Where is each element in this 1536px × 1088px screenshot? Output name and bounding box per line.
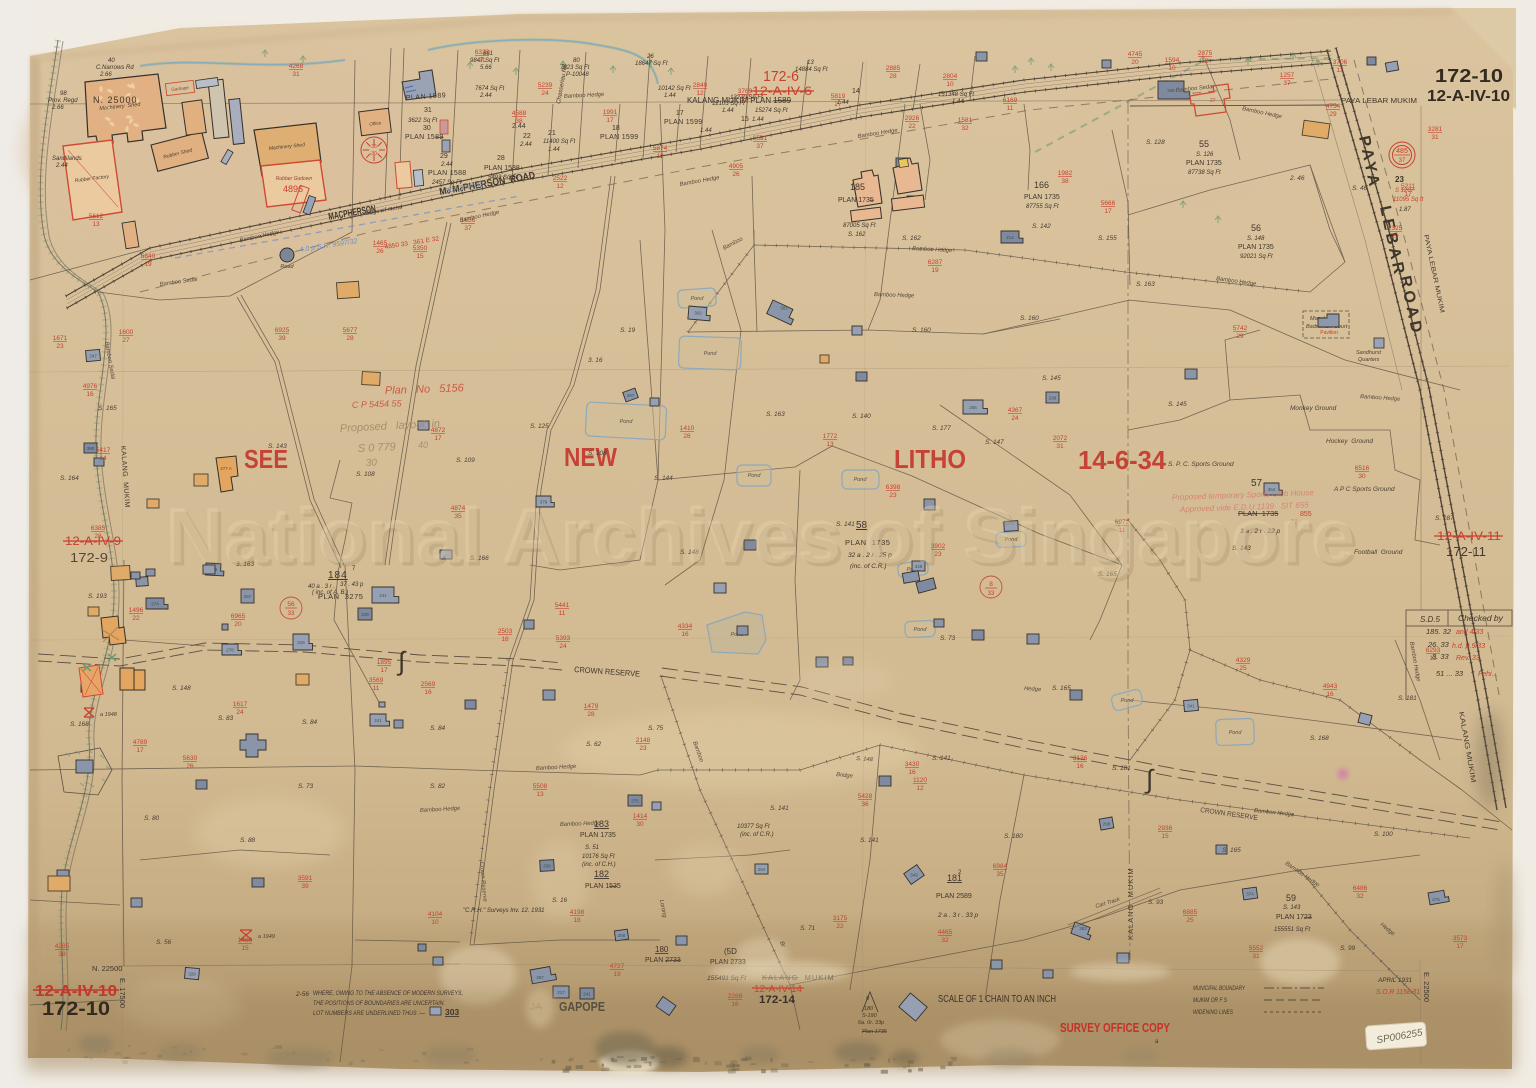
svg-text:182: 182	[594, 869, 609, 879]
svg-text:40: 40	[418, 440, 428, 450]
svg-text:LOT NUMBERS ARE UNDERLINED THU: LOT NUMBERS ARE UNDERLINED THUS :—	[313, 1010, 426, 1017]
svg-text:37: 37	[464, 225, 472, 232]
svg-text:6516: 6516	[1355, 465, 1370, 472]
svg-text:Hedge: Hedge	[1024, 686, 1042, 693]
svg-text:4976: 4976	[83, 383, 98, 390]
svg-text:"C.R.H." Surveys Inv. 12. 1931: "C.R.H." Surveys Inv. 12. 1931	[463, 908, 545, 914]
svg-text:31: 31	[1431, 134, 1439, 141]
svg-text:28: 28	[346, 335, 354, 342]
svg-text:PLAN 3275: PLAN 3275	[318, 592, 363, 601]
svg-text:KALANG MUKIM PLAN 1589: KALANG MUKIM PLAN 1589	[687, 96, 792, 105]
svg-text:26: 26	[732, 171, 740, 178]
svg-text:56: 56	[1251, 223, 1261, 233]
svg-text:6984: 6984	[993, 863, 1008, 870]
svg-text:1496: 1496	[129, 607, 144, 614]
svg-text:NEW: NEW	[564, 442, 617, 472]
svg-text:WHERE, OWING TO THE ABSENCE OF: WHERE, OWING TO THE ABSENCE OF MODERN SU…	[313, 990, 463, 997]
svg-text:36: 36	[861, 801, 869, 808]
svg-text:172-10: 172-10	[1435, 66, 1503, 86]
svg-text:5630: 5630	[183, 755, 198, 762]
svg-text:S. 19: S. 19	[620, 327, 636, 334]
svg-text:12-A-IV-9: 12-A-IV-9	[65, 536, 121, 548]
svg-text:S. 180: S. 180	[1004, 833, 1023, 840]
svg-text:15274 Sq Ft: 15274 Sq Ft	[755, 108, 788, 114]
svg-text:S. 168: S. 168	[1310, 735, 1329, 742]
svg-text:5508: 5508	[533, 783, 548, 790]
svg-text:241: 241	[583, 992, 591, 997]
svg-text:S. 148: S. 148	[856, 756, 874, 763]
svg-text:17: 17	[676, 110, 684, 117]
svg-text:Pond: Pond	[1121, 698, 1135, 704]
svg-text:22: 22	[908, 123, 916, 130]
svg-text:5819: 5819	[831, 93, 846, 100]
svg-text:27: 27	[834, 101, 842, 108]
svg-text:10: 10	[946, 81, 954, 88]
svg-text:349: 349	[910, 873, 918, 878]
svg-text:S. 193: S. 193	[88, 593, 107, 600]
svg-text:1600: 1600	[119, 329, 134, 336]
svg-text:1479: 1479	[584, 703, 599, 710]
svg-text:4872: 4872	[431, 427, 446, 434]
svg-text:12: 12	[916, 785, 924, 792]
svg-text:4104: 4104	[428, 911, 443, 918]
svg-text:17: 17	[380, 667, 388, 674]
svg-text:(inc. of C.H.): (inc. of C.H.)	[582, 862, 616, 868]
svg-text:1772: 1772	[823, 433, 838, 440]
svg-text:PAYA LEBAR MUKIM: PAYA LEBAR MUKIM	[1341, 96, 1417, 105]
svg-text:12: 12	[1336, 67, 1344, 74]
svg-text:14884 Sq Ft: 14884 Sq Ft	[795, 67, 828, 73]
svg-text:2-56: 2-56	[295, 991, 309, 998]
svg-text:S. 143: S. 143	[1283, 905, 1301, 911]
svg-text:PLAN 1589: PLAN 1589	[405, 134, 444, 141]
svg-text:12: 12	[696, 90, 704, 97]
svg-text:6323: 6323	[475, 49, 490, 56]
svg-text:6840: 6840	[141, 253, 156, 260]
svg-text:S. 84: S. 84	[302, 719, 318, 726]
svg-text:10142 Sq Ft: 10142 Sq Ft	[658, 86, 691, 92]
svg-text:10: 10	[431, 919, 439, 926]
svg-text:375: 375	[631, 799, 639, 804]
svg-text:297: 297	[244, 594, 252, 599]
svg-text:S. 163: S. 163	[766, 411, 785, 418]
svg-text:4943: 4943	[1323, 683, 1338, 690]
svg-text:24: 24	[541, 90, 549, 97]
svg-text:S. 100: S. 100	[1374, 831, 1393, 838]
svg-text:5393: 5393	[556, 635, 571, 642]
svg-text:30: 30	[1358, 473, 1366, 480]
svg-text:26: 26	[646, 54, 654, 60]
svg-text:S. 99: S. 99	[1340, 945, 1356, 952]
svg-text:S. 71: S. 71	[800, 925, 816, 932]
svg-text:1120: 1120	[913, 777, 927, 784]
svg-text:2268: 2268	[728, 993, 743, 1000]
svg-text:S. 145: S. 145	[1168, 401, 1187, 408]
svg-text:Fehi...: Fehi...	[1478, 671, 1498, 678]
svg-text:7674 Sq Ft: 7674 Sq Ft	[475, 86, 505, 92]
svg-text:S. 108: S. 108	[588, 450, 607, 457]
svg-text:1414: 1414	[633, 813, 648, 820]
svg-text:13: 13	[807, 60, 814, 66]
svg-text:16: 16	[1326, 691, 1334, 698]
svg-text:5.66: 5.66	[480, 65, 492, 71]
svg-text:38: 38	[1061, 178, 1069, 185]
svg-text:18647 Sq Ft: 18647 Sq Ft	[635, 61, 668, 67]
svg-text:38: 38	[515, 118, 523, 125]
svg-text:6965: 6965	[231, 613, 246, 620]
svg-text:3569: 3569	[369, 677, 384, 684]
svg-text:39: 39	[301, 883, 309, 890]
svg-text:S. 165: S. 165	[98, 405, 117, 412]
svg-text:16: 16	[908, 769, 916, 776]
svg-text:35: 35	[996, 871, 1004, 878]
svg-text:15: 15	[241, 945, 249, 952]
svg-text:S. 93: S. 93	[1148, 899, 1164, 906]
svg-text:31: 31	[424, 107, 432, 114]
svg-text:S. 148: S. 148	[172, 685, 191, 692]
svg-text:(5D: (5D	[724, 947, 737, 956]
svg-text:1895: 1895	[377, 659, 392, 666]
svg-text:4745: 4745	[1128, 51, 1143, 58]
svg-text:S. 162: S. 162	[848, 232, 866, 238]
svg-text:2522: 2522	[553, 175, 568, 182]
svg-text:5552: 5552	[1249, 945, 1264, 952]
svg-text:S. 155: S. 155	[1098, 235, 1117, 242]
svg-text:S. 144: S. 144	[654, 475, 673, 482]
svg-text:N. 22500: N. 22500	[92, 964, 122, 973]
svg-text:17: 17	[606, 117, 614, 124]
svg-text:Pond: Pond	[704, 351, 718, 357]
svg-text:37: 37	[756, 143, 764, 150]
svg-text:13: 13	[92, 221, 100, 228]
svg-text:15: 15	[1161, 833, 1169, 840]
svg-text:4727: 4727	[610, 963, 625, 970]
svg-text:APRIL 1931: APRIL 1931	[1377, 977, 1412, 984]
svg-text:6486: 6486	[1353, 885, 1368, 892]
svg-text:12: 12	[656, 153, 664, 160]
svg-text:6169: 6169	[1003, 97, 1018, 104]
svg-text:172-10: 172-10	[42, 999, 110, 1020]
svg-text:328: 328	[188, 972, 196, 977]
svg-text:239: 239	[361, 612, 369, 617]
svg-text:S. 187: S. 187	[1435, 515, 1454, 522]
svg-text:131348 Sq Ft: 131348 Sq Ft	[938, 92, 974, 98]
svg-text:5211: 5211	[1401, 183, 1415, 190]
svg-text:5239: 5239	[538, 82, 553, 89]
svg-text:PLAN 1588: PLAN 1588	[428, 170, 467, 177]
svg-text:12-A-IV-10: 12-A-IV-10	[1427, 88, 1510, 105]
svg-text:16: 16	[86, 391, 94, 398]
svg-text:C P 5454 55: C P 5454 55	[352, 398, 403, 410]
svg-text:28: 28	[683, 433, 691, 440]
svg-text:19: 19	[931, 267, 939, 274]
svg-text:21: 21	[478, 57, 486, 64]
svg-text:14: 14	[852, 88, 860, 95]
svg-text:1.44: 1.44	[548, 147, 560, 153]
svg-text:S. 142: S. 142	[1032, 223, 1051, 230]
svg-text:57: 57	[1251, 478, 1263, 489]
svg-text:297: 297	[627, 393, 635, 398]
svg-text:31: 31	[292, 71, 300, 78]
svg-text:SCALE OF 1 CHAIN TO AN INCH: SCALE OF 1 CHAIN TO AN INCH	[938, 994, 1056, 1005]
svg-text:87755 Sq Ft: 87755 Sq Ft	[1026, 204, 1059, 210]
svg-text:27: 27	[1210, 98, 1216, 104]
svg-text:S. 162: S. 162	[902, 235, 921, 242]
svg-text:PLAN 1723: PLAN 1723	[1276, 914, 1312, 921]
svg-text:301: 301	[780, 306, 788, 311]
svg-text:341: 341	[1187, 704, 1195, 709]
svg-text:Plan 1735: Plan 1735	[862, 1029, 888, 1035]
svg-text:274: 274	[151, 602, 159, 607]
svg-text:PLAN 1535: PLAN 1535	[585, 883, 621, 890]
svg-text:6531: 6531	[753, 135, 768, 142]
svg-text:1410: 1410	[680, 425, 695, 432]
svg-text:254: 254	[758, 867, 766, 872]
svg-text:217: 217	[557, 990, 565, 995]
svg-text:36: 36	[371, 144, 377, 150]
svg-text:30: 30	[366, 457, 378, 469]
svg-text:258: 258	[618, 933, 626, 938]
svg-text:S-190: S-190	[862, 1013, 878, 1019]
svg-text:6a. 0r. 33p: 6a. 0r. 33p	[858, 1020, 884, 1026]
svg-text:6385: 6385	[91, 525, 106, 532]
svg-text:55: 55	[1199, 139, 1209, 149]
svg-text:27: 27	[122, 337, 130, 344]
svg-text:S. 177: S. 177	[932, 425, 951, 432]
svg-text:S. 148: S. 148	[1247, 236, 1265, 242]
svg-text:S. 164: S. 164	[60, 475, 79, 482]
svg-text:S. 160: S. 160	[1020, 315, 1039, 322]
svg-text:Pond: Pond	[691, 296, 705, 302]
svg-text:5677: 5677	[343, 327, 358, 334]
svg-text:16: 16	[681, 631, 689, 638]
svg-text:241: 241	[379, 593, 387, 598]
svg-text:2936: 2936	[1158, 825, 1173, 832]
svg-text:2.66: 2.66	[99, 72, 112, 78]
svg-text:2840: 2840	[693, 82, 708, 89]
svg-text:5417: 5417	[96, 447, 111, 454]
svg-text:24: 24	[559, 643, 567, 650]
svg-text:PLAN 1735: PLAN 1735	[1024, 194, 1060, 201]
svg-text:THE POSITIONS OF BOUNDARIES AR: THE POSITIONS OF BOUNDARIES ARE UNCERTAI…	[313, 1000, 445, 1007]
svg-text:3573: 3573	[1453, 935, 1468, 942]
svg-text:4588: 4588	[512, 110, 527, 117]
svg-text:12-A-IV-11: 12-A-IV-11	[1437, 531, 1501, 543]
svg-text:19: 19	[144, 261, 152, 268]
svg-text:4367: 4367	[1008, 407, 1023, 414]
svg-text:S. 143: S. 143	[268, 443, 287, 450]
svg-text:5742: 5742	[1233, 325, 1248, 332]
svg-text:239: 239	[1049, 396, 1057, 401]
svg-text:S. 145: S. 145	[1042, 375, 1061, 382]
svg-text:172-14: 172-14	[759, 994, 796, 1006]
svg-text:PLAN 1735: PLAN 1735	[1186, 160, 1222, 167]
svg-text:12: 12	[556, 183, 564, 190]
svg-text:and 4/33: and 4/33	[1456, 629, 1483, 636]
svg-text:18: 18	[501, 636, 509, 643]
svg-text:S. 75: S. 75	[648, 725, 664, 732]
svg-text:1.44: 1.44	[722, 108, 734, 114]
svg-text:Quarters: Quarters	[1358, 357, 1380, 363]
svg-text:6885: 6885	[1183, 909, 1198, 916]
svg-text:S. 73: S. 73	[940, 635, 956, 642]
svg-text:38: 38	[58, 951, 66, 958]
svg-text:33: 33	[288, 611, 295, 617]
svg-text:31: 31	[1252, 953, 1260, 960]
svg-text:14: 14	[99, 455, 107, 462]
svg-text:31: 31	[1056, 443, 1064, 450]
svg-text:1982: 1982	[1058, 170, 1073, 177]
svg-text:WIDENING LINES: WIDENING LINES	[1193, 1009, 1233, 1016]
svg-text:3136: 3136	[1073, 755, 1088, 762]
svg-text:S. 141: S. 141	[860, 837, 879, 844]
svg-text:19: 19	[613, 971, 621, 978]
svg-text:13: 13	[1429, 655, 1437, 662]
svg-text:S. 88: S. 88	[240, 837, 256, 844]
svg-text:20: 20	[1131, 59, 1139, 66]
svg-text:1465: 1465	[373, 240, 388, 247]
svg-text:GAPOPE: GAPOPE	[559, 1000, 605, 1014]
svg-text:316: 316	[297, 640, 305, 645]
svg-text:Pond: Pond	[748, 473, 762, 479]
svg-text:22: 22	[132, 615, 140, 622]
svg-text:S. 82: S. 82	[430, 783, 446, 790]
svg-text:Pond: Pond	[1229, 730, 1243, 736]
svg-text:39: 39	[278, 335, 286, 342]
svg-text:387: 387	[536, 975, 544, 980]
svg-text:Monkey Ground: Monkey Ground	[1290, 405, 1337, 412]
svg-text:302: 302	[694, 311, 702, 316]
svg-text:15: 15	[741, 116, 749, 123]
svg-text:28: 28	[94, 533, 102, 540]
svg-text:17: 17	[1456, 943, 1464, 950]
svg-text:S. 160: S. 160	[912, 327, 931, 334]
svg-text:2.44: 2.44	[479, 93, 492, 99]
svg-text:3706: 3706	[1333, 59, 1348, 66]
svg-text:Rubber Godown: Rubber Godown	[276, 176, 313, 182]
svg-text:23: 23	[639, 745, 647, 752]
svg-text:214: 214	[1006, 235, 1014, 240]
svg-text:17: 17	[1404, 191, 1412, 198]
svg-text:SURVEY OFFICE COPY: SURVEY OFFICE COPY	[1060, 1021, 1171, 1035]
svg-text:S. 181: S. 181	[1112, 765, 1131, 772]
svg-text:98: 98	[60, 91, 67, 97]
svg-text:S. 141: S. 141	[770, 805, 789, 812]
svg-text:26: 26	[376, 248, 384, 255]
svg-text:10: 10	[1168, 65, 1176, 72]
svg-text:3175: 3175	[833, 915, 848, 922]
svg-text:PLAN 2733: PLAN 2733	[645, 957, 681, 964]
svg-text:PLAN 1735: PLAN 1735	[580, 832, 616, 839]
svg-text:Pavilion: Pavilion	[1320, 330, 1338, 336]
svg-text:11: 11	[373, 685, 380, 692]
svg-text:1257: 1257	[1280, 72, 1295, 79]
svg-text:4334: 4334	[678, 623, 693, 630]
svg-text:5350: 5350	[413, 245, 428, 252]
svg-text:180: 180	[655, 945, 669, 954]
svg-text:S. 126: S. 126	[1196, 152, 1214, 158]
svg-text:6293: 6293	[1426, 647, 1441, 654]
svg-text:277 A: 277 A	[220, 466, 232, 471]
svg-text:a 1948: a 1948	[100, 712, 118, 718]
svg-text:374: 374	[1246, 892, 1254, 897]
svg-text:S. 125: S. 125	[530, 423, 549, 430]
svg-text:S.O.R 1158 31: S.O.R 1158 31	[1376, 989, 1420, 996]
svg-text:4905: 4905	[729, 163, 744, 170]
svg-text:1.44: 1.44	[664, 93, 676, 99]
svg-text:4754: 4754	[1326, 103, 1341, 110]
svg-text:S. 62: S. 62	[586, 741, 602, 748]
svg-text:16: 16	[424, 689, 432, 696]
svg-text:Pond: Pond	[854, 477, 868, 483]
svg-text:Rev. 33: Rev. 33	[1456, 655, 1480, 662]
svg-text:S. 80: S. 80	[144, 815, 160, 822]
svg-text:40: 40	[108, 58, 115, 64]
svg-text:1671: 1671	[53, 335, 68, 342]
svg-text:298: 298	[1103, 822, 1111, 827]
svg-text:S. 56: S. 56	[156, 939, 172, 946]
svg-text:3. 16: 3. 16	[588, 357, 603, 364]
svg-text:7623 Sq Ft: 7623 Sq Ft	[560, 65, 590, 71]
svg-text:Hockey Ground: Hockey Ground	[1326, 438, 1373, 445]
svg-text:29: 29	[440, 153, 448, 160]
svg-text:Pond: Pond	[620, 419, 634, 425]
svg-text:2569: 2569	[421, 681, 436, 688]
svg-text:51 ... 33: 51 ... 33	[1436, 669, 1464, 678]
svg-text:28: 28	[889, 73, 897, 80]
svg-text:PLAN 1599: PLAN 1599	[600, 134, 639, 141]
svg-text:87005 Sq Ft: 87005 Sq Ft	[843, 223, 876, 229]
svg-text:5612: 5612	[89, 213, 104, 220]
svg-text:E. 17500: E. 17500	[118, 978, 127, 1008]
svg-text:17: 17	[434, 435, 442, 442]
svg-text:25: 25	[1186, 917, 1194, 924]
svg-text:National Archives of Singapore: National Archives of Singapore	[165, 491, 1355, 579]
svg-text:241: 241	[374, 718, 382, 723]
svg-text:4268: 4268	[289, 63, 304, 70]
svg-text:S. 163: S. 163	[1136, 281, 1155, 288]
svg-text:5441: 5441	[555, 602, 570, 609]
svg-text:S. 141: S. 141	[932, 755, 951, 762]
svg-text:S. 165: S. 165	[1222, 847, 1241, 854]
svg-text:3281: 3281	[1428, 126, 1443, 133]
svg-text:37 . 43 p: 37 . 43 p	[340, 582, 364, 588]
svg-text:5428: 5428	[858, 793, 873, 800]
svg-text:3430: 3430	[905, 761, 920, 768]
svg-text:S. 46: S. 46	[1352, 185, 1368, 192]
svg-text:10377 Sq Ft: 10377 Sq Ft	[737, 824, 770, 830]
svg-text:3622 Sq Ft: 3622 Sq Ft	[408, 118, 438, 124]
svg-text:16: 16	[731, 1001, 739, 1008]
svg-text:22: 22	[836, 923, 844, 930]
svg-text:56: 56	[287, 601, 295, 608]
svg-text:5666: 5666	[1101, 200, 1116, 207]
svg-text:32: 32	[941, 937, 949, 944]
svg-text:59: 59	[1286, 893, 1296, 903]
svg-text:4896: 4896	[283, 184, 303, 194]
svg-text:1.44: 1.44	[952, 99, 964, 105]
svg-text:S. 16: S. 16	[552, 897, 568, 904]
svg-text:2875: 2875	[1198, 50, 1213, 57]
svg-text:1617: 1617	[233, 701, 248, 708]
svg-text:PLAN 2589: PLAN 2589	[936, 893, 972, 900]
svg-text:PLAN 1735: PLAN 1735	[1238, 244, 1274, 251]
svg-text:2148: 2148	[636, 737, 651, 744]
svg-text:1325: 1325	[1388, 225, 1403, 232]
svg-text:PLAN 1735: PLAN 1735	[838, 197, 874, 204]
svg-text:256: 256	[969, 405, 977, 410]
svg-text:2926: 2926	[905, 115, 920, 122]
